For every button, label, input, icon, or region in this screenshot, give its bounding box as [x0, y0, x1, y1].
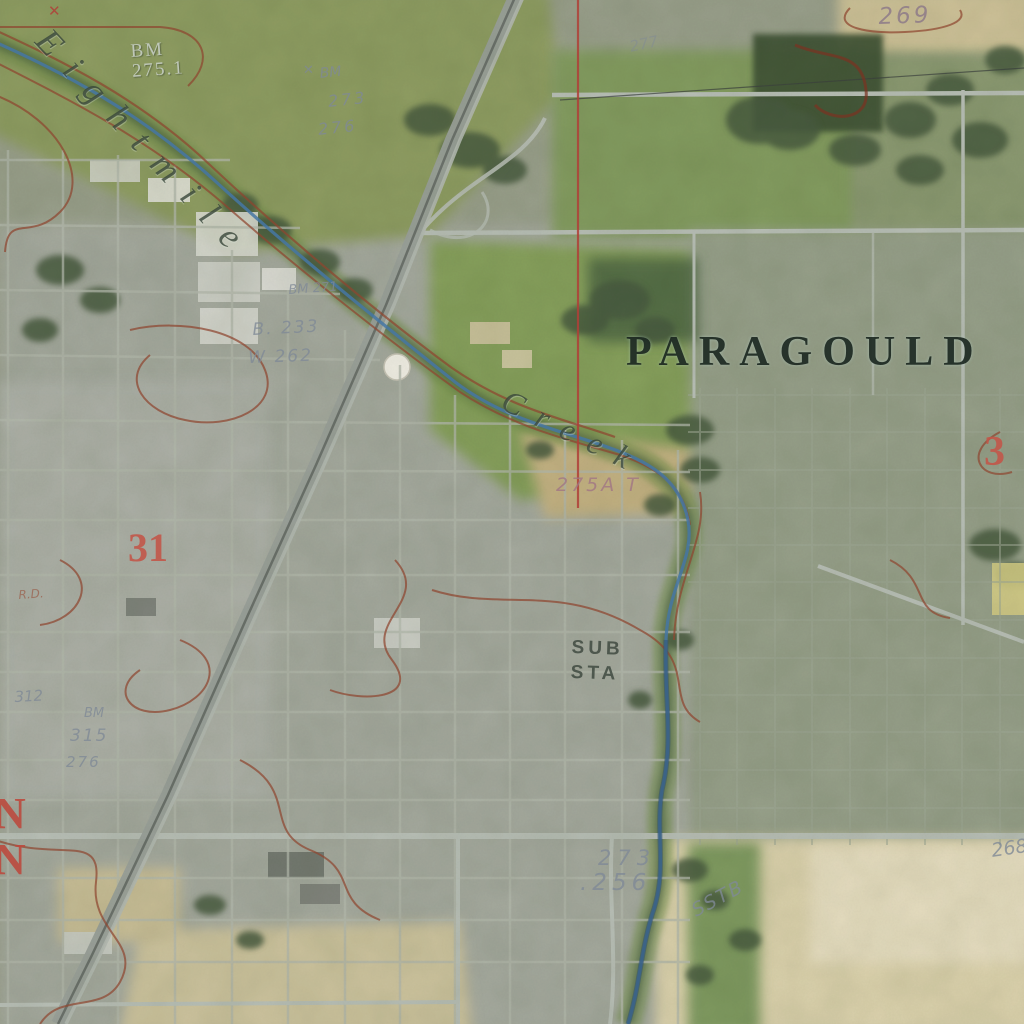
aerial-topo-layer — [0, 0, 1024, 1024]
photo-grain — [0, 0, 1024, 1024]
map-canvas[interactable]: Eightmile Creek PARAGOULD BM 275.1 269 ✕… — [0, 0, 1024, 1024]
